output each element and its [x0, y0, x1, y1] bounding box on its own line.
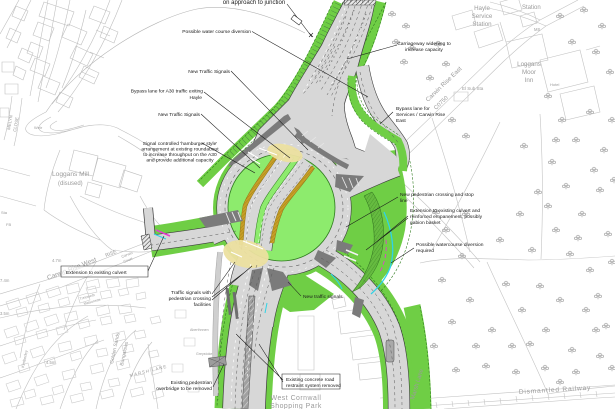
svg-text:Services / Carwin Rise: Services / Carwin Rise — [396, 112, 445, 118]
svg-text:Inn: Inn — [525, 77, 534, 84]
svg-text:Loggans: Loggans — [517, 61, 541, 68]
svg-text:Hayle: Hayle — [474, 5, 490, 12]
svg-text:required: required — [416, 248, 434, 254]
svg-text:East: East — [396, 118, 406, 124]
svg-text:Extension to existing culvert: Extension to existing culvert — [66, 270, 127, 276]
svg-text:Greystoke: Greystoke — [196, 352, 212, 356]
svg-text:MS: MS — [534, 27, 540, 32]
svg-text:Weir: Weir — [34, 125, 43, 130]
svg-text:reinforced empanement, possibl: reinforced empanement, possibly — [410, 214, 483, 220]
svg-text:New traffic signals: New traffic signals — [303, 294, 343, 300]
svg-text:line: line — [400, 198, 408, 204]
svg-text:and provide additional capacit: and provide additional capacity — [146, 158, 214, 164]
svg-text:Station: Station — [472, 21, 492, 28]
svg-text:increase capacity: increase capacity — [405, 47, 443, 53]
svg-text:Carriageway widening to: Carriageway widening to — [397, 41, 451, 47]
svg-text:Sta: Sta — [1, 210, 8, 215]
svg-text:4.7m: 4.7m — [52, 258, 62, 263]
svg-text:on approach to junction: on approach to junction — [223, 0, 285, 6]
svg-text:FB: FB — [6, 222, 11, 227]
svg-text:New Traffic Signals: New Traffic Signals — [158, 112, 200, 118]
svg-text:to increase throughput on the: to increase throughput on the A30 — [143, 152, 217, 158]
svg-text:3.5m: 3.5m — [0, 311, 10, 316]
svg-text:overbridge to be removed: overbridge to be removed — [156, 386, 212, 392]
svg-text:Bypass lane for A30 traffic ex: Bypass lane for A30 traffic exiting — [131, 89, 204, 95]
svg-text:Shopping Park: Shopping Park — [270, 403, 322, 409]
svg-text:arrangement at existing rounda: arrangement at existing roundabout — [141, 147, 219, 153]
svg-text:Hayle: Hayle — [189, 95, 202, 101]
svg-text:Hotel: Hotel — [550, 82, 559, 87]
svg-text:7.4m: 7.4m — [0, 278, 10, 283]
svg-text:Aberthnnen: Aberthnnen — [190, 328, 209, 332]
svg-text:Service: Service — [472, 13, 493, 20]
svg-text:Traffic signals with: Traffic signals with — [171, 290, 211, 296]
svg-text:Possible watercourse diversion: Possible watercourse diversion — [416, 242, 484, 248]
svg-text:pedestrian crossing: pedestrian crossing — [169, 296, 212, 302]
svg-text:restraint system removed: restraint system removed — [286, 383, 341, 389]
svg-text:facilities: facilities — [194, 302, 212, 308]
svg-text:West Cornwall: West Cornwall — [271, 395, 322, 402]
svg-text:Existing concrete road: Existing concrete road — [286, 377, 335, 383]
svg-text:gabion basket: gabion basket — [410, 220, 441, 226]
svg-text:4.5m: 4.5m — [46, 360, 56, 365]
svg-text:(disused): (disused) — [58, 181, 83, 187]
svg-text:New pedestrian crossing and st: New pedestrian crossing and stop — [400, 192, 474, 198]
svg-text:Moor: Moor — [522, 69, 536, 76]
svg-text:Bypass lane for: Bypass lane for — [396, 106, 430, 112]
svg-text:Signal controlled 'hamburger s: Signal controlled 'hamburger style' — [143, 141, 218, 147]
svg-text:Existing pedestrian: Existing pedestrian — [171, 380, 213, 386]
svg-text:Possible water course diversio: Possible water course diversion — [182, 29, 251, 35]
svg-text:Station: Station — [522, 5, 541, 11]
svg-text:Extension to existing culvert: Extension to existing culvert and — [410, 208, 480, 214]
svg-text:New Traffic Signals: New Traffic Signals — [188, 69, 230, 75]
svg-text:Loggans Mill: Loggans Mill — [52, 171, 90, 178]
svg-text:El Sub Sta: El Sub Sta — [462, 86, 484, 91]
